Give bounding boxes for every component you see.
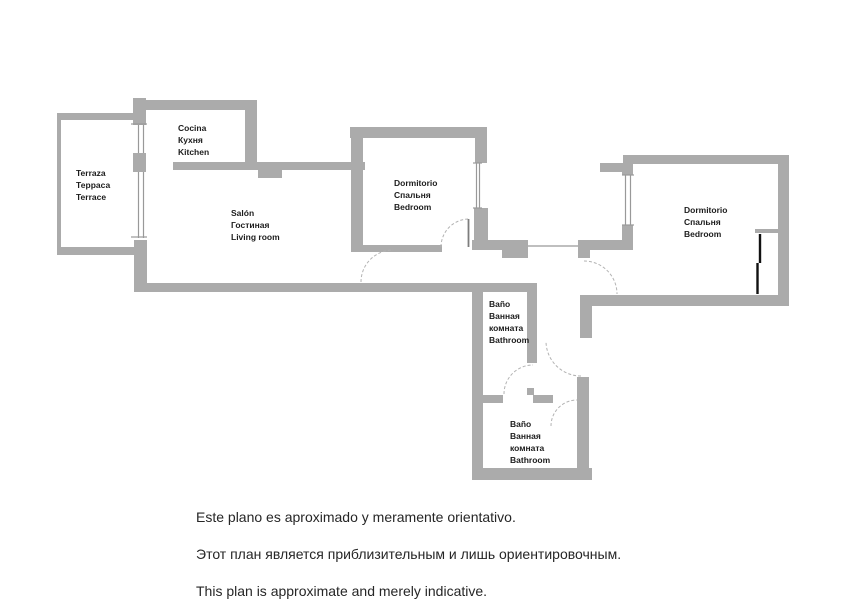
room-label-bathroom-2: Ванная — [510, 431, 541, 441]
wall-segment — [350, 127, 487, 138]
disclaimer-es: Este plano es aproximado y meramente ori… — [196, 509, 516, 525]
room-label-terrace: Terrace — [76, 192, 106, 202]
wall-segment — [258, 170, 282, 178]
wall-segment — [778, 155, 789, 306]
wall-segment — [351, 245, 442, 252]
wall-segment — [133, 100, 257, 110]
wall-segment — [135, 283, 537, 292]
room-label-terrace: Терраса — [76, 180, 110, 190]
wall-segment — [622, 225, 633, 250]
wall-segment — [600, 163, 623, 172]
room-label-bedroom-2: Спальня — [684, 217, 721, 227]
room-label-bedroom-2: Bedroom — [684, 229, 722, 239]
wall-segment — [57, 247, 135, 255]
wall-segment — [133, 153, 146, 172]
room-label-bathroom-2: Bathroom — [510, 455, 551, 465]
wall-segment — [483, 395, 503, 403]
wall-segment — [245, 110, 257, 162]
wall-segment — [475, 138, 487, 163]
wall-segment — [173, 162, 365, 170]
wall-segment — [622, 164, 633, 175]
room-label-terrace: Terraza — [76, 168, 106, 178]
wall-segment — [472, 240, 528, 250]
room-label-kitchen: Kitchen — [178, 147, 209, 157]
door-swing-arc — [546, 341, 581, 376]
room-label-bathroom-1: Bathroom — [489, 335, 530, 345]
wall-segment — [502, 250, 528, 258]
wall-segment — [578, 250, 590, 258]
wall-segment — [57, 113, 133, 120]
floor-plan-page: TerrazaТеррасаTerraceCocinaКухняKitchenS… — [0, 0, 850, 614]
room-label-kitchen: Кухня — [178, 135, 203, 145]
room-label-bathroom-1: комната — [489, 323, 524, 333]
room-label-bedroom-1: Dormitorio — [394, 178, 437, 188]
wall-segment — [580, 295, 787, 306]
room-label-bedroom-2: Dormitorio — [684, 205, 727, 215]
wall-segment — [472, 468, 592, 480]
door-swing-arc — [361, 250, 393, 282]
wall-segment — [527, 388, 534, 395]
room-label-living-room: Salón — [231, 208, 254, 218]
wall-segment — [57, 113, 61, 255]
room-label-bathroom-1: Ванная — [489, 311, 520, 321]
disclaimer-ru: Этот план является приблизительным и лиш… — [196, 546, 621, 562]
room-label-bedroom-1: Bedroom — [394, 202, 432, 212]
wall-segment — [623, 155, 787, 164]
wall-segment — [533, 395, 553, 403]
wall-segment — [351, 138, 363, 250]
room-label-bathroom-1: Baño — [489, 299, 510, 309]
wall-segment — [577, 377, 589, 470]
room-label-bathroom-2: Baño — [510, 419, 531, 429]
wall-segment — [527, 292, 537, 363]
door-swing-arc — [551, 400, 577, 426]
disclaimer-en: This plan is approximate and merely indi… — [196, 583, 487, 599]
room-label-living-room: Гостиная — [231, 220, 269, 230]
wall-segment — [755, 229, 778, 233]
wall-segment — [472, 292, 483, 470]
room-label-bathroom-2: комната — [510, 443, 545, 453]
door-swing-arc — [584, 261, 617, 294]
room-label-kitchen: Cocina — [178, 123, 207, 133]
room-label-bedroom-1: Спальня — [394, 190, 431, 200]
room-label-living-room: Living room — [231, 232, 280, 242]
door-swing-arc — [441, 219, 469, 247]
